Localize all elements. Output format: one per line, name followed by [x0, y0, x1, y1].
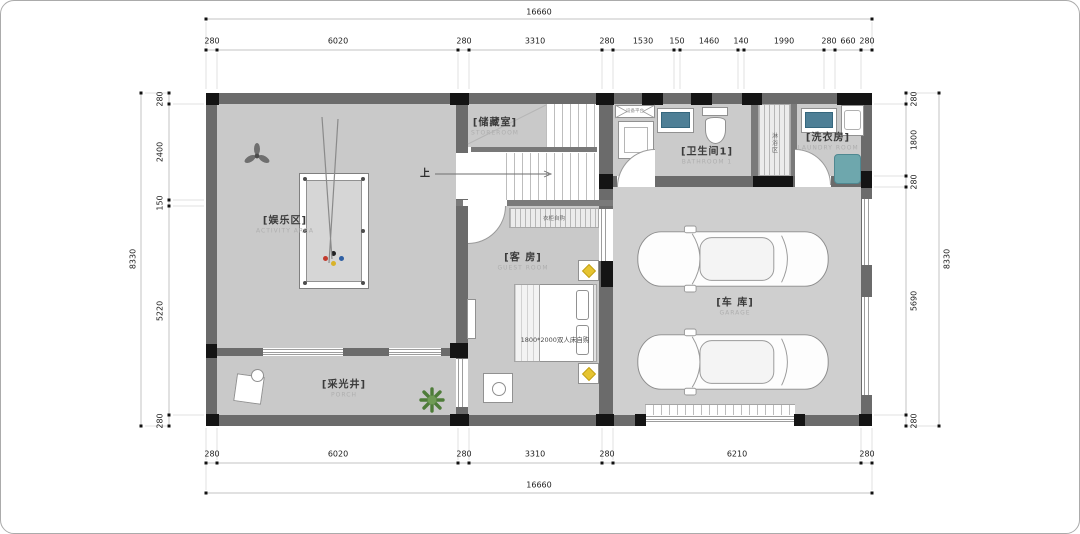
dim-label: 660 — [840, 37, 855, 46]
sliding-window — [263, 348, 343, 356]
stairs-up-label: 上 — [420, 165, 430, 180]
column — [596, 414, 614, 426]
column — [794, 414, 805, 426]
dim-label: 6210 — [727, 450, 747, 459]
room-name: [储藏室] — [473, 118, 517, 129]
dim-label: 1800 — [910, 130, 919, 150]
column — [206, 93, 219, 105]
toilet-tank — [702, 107, 728, 116]
door-opening — [456, 359, 468, 407]
room-name-en: GUEST ROOM — [497, 265, 548, 272]
car — [634, 225, 832, 293]
dim-label: 280 — [456, 450, 471, 459]
column — [691, 93, 712, 105]
washbasin-bowl — [805, 112, 833, 128]
column — [450, 343, 468, 358]
column — [601, 261, 613, 287]
column — [450, 93, 469, 105]
desk-chair — [492, 382, 506, 396]
pocket — [303, 177, 307, 181]
dim-label: 280 — [156, 413, 165, 428]
column — [753, 176, 793, 187]
room-name-en: ACTIVITY AREA — [256, 228, 314, 235]
stairs-upper-flight — [546, 104, 599, 147]
dim-top-total: 16660 — [526, 8, 551, 17]
bed-note: 1800*2000双人床自购 — [521, 334, 590, 344]
stairs-handrail — [471, 147, 597, 152]
car — [634, 328, 832, 396]
column — [861, 171, 872, 188]
dim-label: 5220 — [156, 301, 165, 321]
room-name-en: LAUNDRY ROOM — [797, 145, 858, 152]
dim-label: 150 — [156, 195, 165, 210]
column — [742, 93, 762, 105]
washer-icon — [834, 154, 861, 184]
column — [859, 414, 872, 426]
dim-label: 280 — [859, 37, 874, 46]
floorplan-canvas: 16660 280 6020 280 3310 280 1530 150 146… — [0, 0, 1080, 534]
dim-label: 280 — [204, 37, 219, 46]
billiard-ball — [331, 261, 336, 266]
room-name: [采光井] — [322, 380, 366, 391]
dim-label: 280 — [204, 450, 219, 459]
garage-door-opening — [645, 415, 795, 426]
dim-label: 3310 — [525, 37, 545, 46]
ceiling-fan-icon — [243, 143, 271, 167]
dim-label: 1530 — [633, 37, 653, 46]
dim-right-total: 8330 — [943, 249, 952, 269]
dim-label: 1460 — [699, 37, 719, 46]
pool-table-felt — [306, 180, 362, 282]
shaft-note: 淋浴区 — [770, 133, 779, 154]
bench — [467, 299, 476, 339]
door-opening — [456, 153, 468, 199]
dim-label: 6020 — [328, 450, 348, 459]
dim-label: 1990 — [774, 37, 794, 46]
pocket — [361, 229, 365, 233]
dim-label: 280 — [156, 91, 165, 106]
pocket — [361, 177, 365, 181]
dim-bottom-total: 16660 — [526, 481, 551, 490]
room-name: [洗衣房] — [806, 133, 850, 144]
room-name: [娱乐区] — [263, 216, 307, 227]
dim-label: 280 — [599, 450, 614, 459]
room-name: [卫生间1] — [681, 147, 733, 158]
window — [862, 297, 872, 395]
dim-label: 280 — [910, 91, 919, 106]
room-name-en: BATHROOM 1 — [681, 159, 733, 166]
room-name: [车 库] — [716, 298, 754, 309]
room-label-storage: [储藏室] STOREROOM — [471, 114, 519, 137]
room-label-lightwell: [采光井] PORCH — [322, 376, 366, 399]
wall — [751, 104, 758, 176]
stairs-lower-flight — [506, 153, 599, 200]
wall — [206, 93, 217, 426]
dim-label: 280 — [821, 37, 836, 46]
shower-tray-inner — [624, 127, 648, 153]
dim-label: 280 — [910, 174, 919, 189]
dim-label: 280 — [859, 450, 874, 459]
billiard-ball — [331, 251, 336, 256]
room-label-garage: [车 库] GARAGE — [716, 294, 754, 317]
wall — [206, 93, 872, 104]
dim-label: 140 — [733, 37, 748, 46]
wardrobe-note: 衣柜自购 — [543, 214, 565, 222]
column — [859, 93, 872, 105]
dim-label: 5690 — [910, 291, 919, 311]
room-name-en: PORCH — [322, 392, 366, 399]
dim-label: 150 — [669, 37, 684, 46]
dim-label: 2400 — [156, 142, 165, 162]
dim-label: 280 — [456, 37, 471, 46]
column — [596, 93, 614, 105]
dim-label: 6020 — [328, 37, 348, 46]
bed-blanket — [514, 284, 540, 362]
room-name-en: GARAGE — [716, 310, 754, 317]
sliding-window — [389, 348, 441, 356]
dim-left-total: 8330 — [129, 249, 138, 269]
room-label-bathroom: [卫生间1] BATHROOM 1 — [681, 143, 733, 166]
dim-label: 280 — [599, 37, 614, 46]
dim-label: 3310 — [525, 450, 545, 459]
room-name: [客 房] — [504, 253, 542, 264]
column — [206, 344, 217, 358]
pillow — [576, 290, 589, 320]
plant-icon — [417, 385, 447, 415]
stool-cushion — [251, 369, 264, 382]
door-opening — [599, 209, 613, 261]
column — [206, 414, 219, 426]
room-label-laundry: [洗衣房] LAUNDRY ROOM — [797, 129, 858, 152]
toilet-icon — [705, 117, 726, 144]
garage-door-track — [645, 404, 795, 415]
pocket — [361, 281, 365, 285]
room-label-guest: [客 房] GUEST ROOM — [497, 249, 548, 272]
billiard-ball — [339, 256, 344, 261]
column — [635, 414, 646, 426]
column — [599, 174, 613, 189]
column — [837, 93, 859, 105]
room-label-entertainment: [娱乐区] ACTIVITY AREA — [256, 212, 314, 235]
billiard-ball — [323, 256, 328, 261]
sink-bowl — [844, 110, 861, 130]
column — [642, 93, 663, 105]
room-name-en: STOREROOM — [471, 130, 519, 137]
column — [450, 414, 469, 426]
pocket — [303, 281, 307, 285]
vent-note: 设备平台 — [626, 108, 644, 114]
washbasin-bowl — [661, 112, 690, 128]
headboard — [593, 284, 597, 362]
window — [862, 199, 872, 265]
dim-label: 280 — [910, 413, 919, 428]
